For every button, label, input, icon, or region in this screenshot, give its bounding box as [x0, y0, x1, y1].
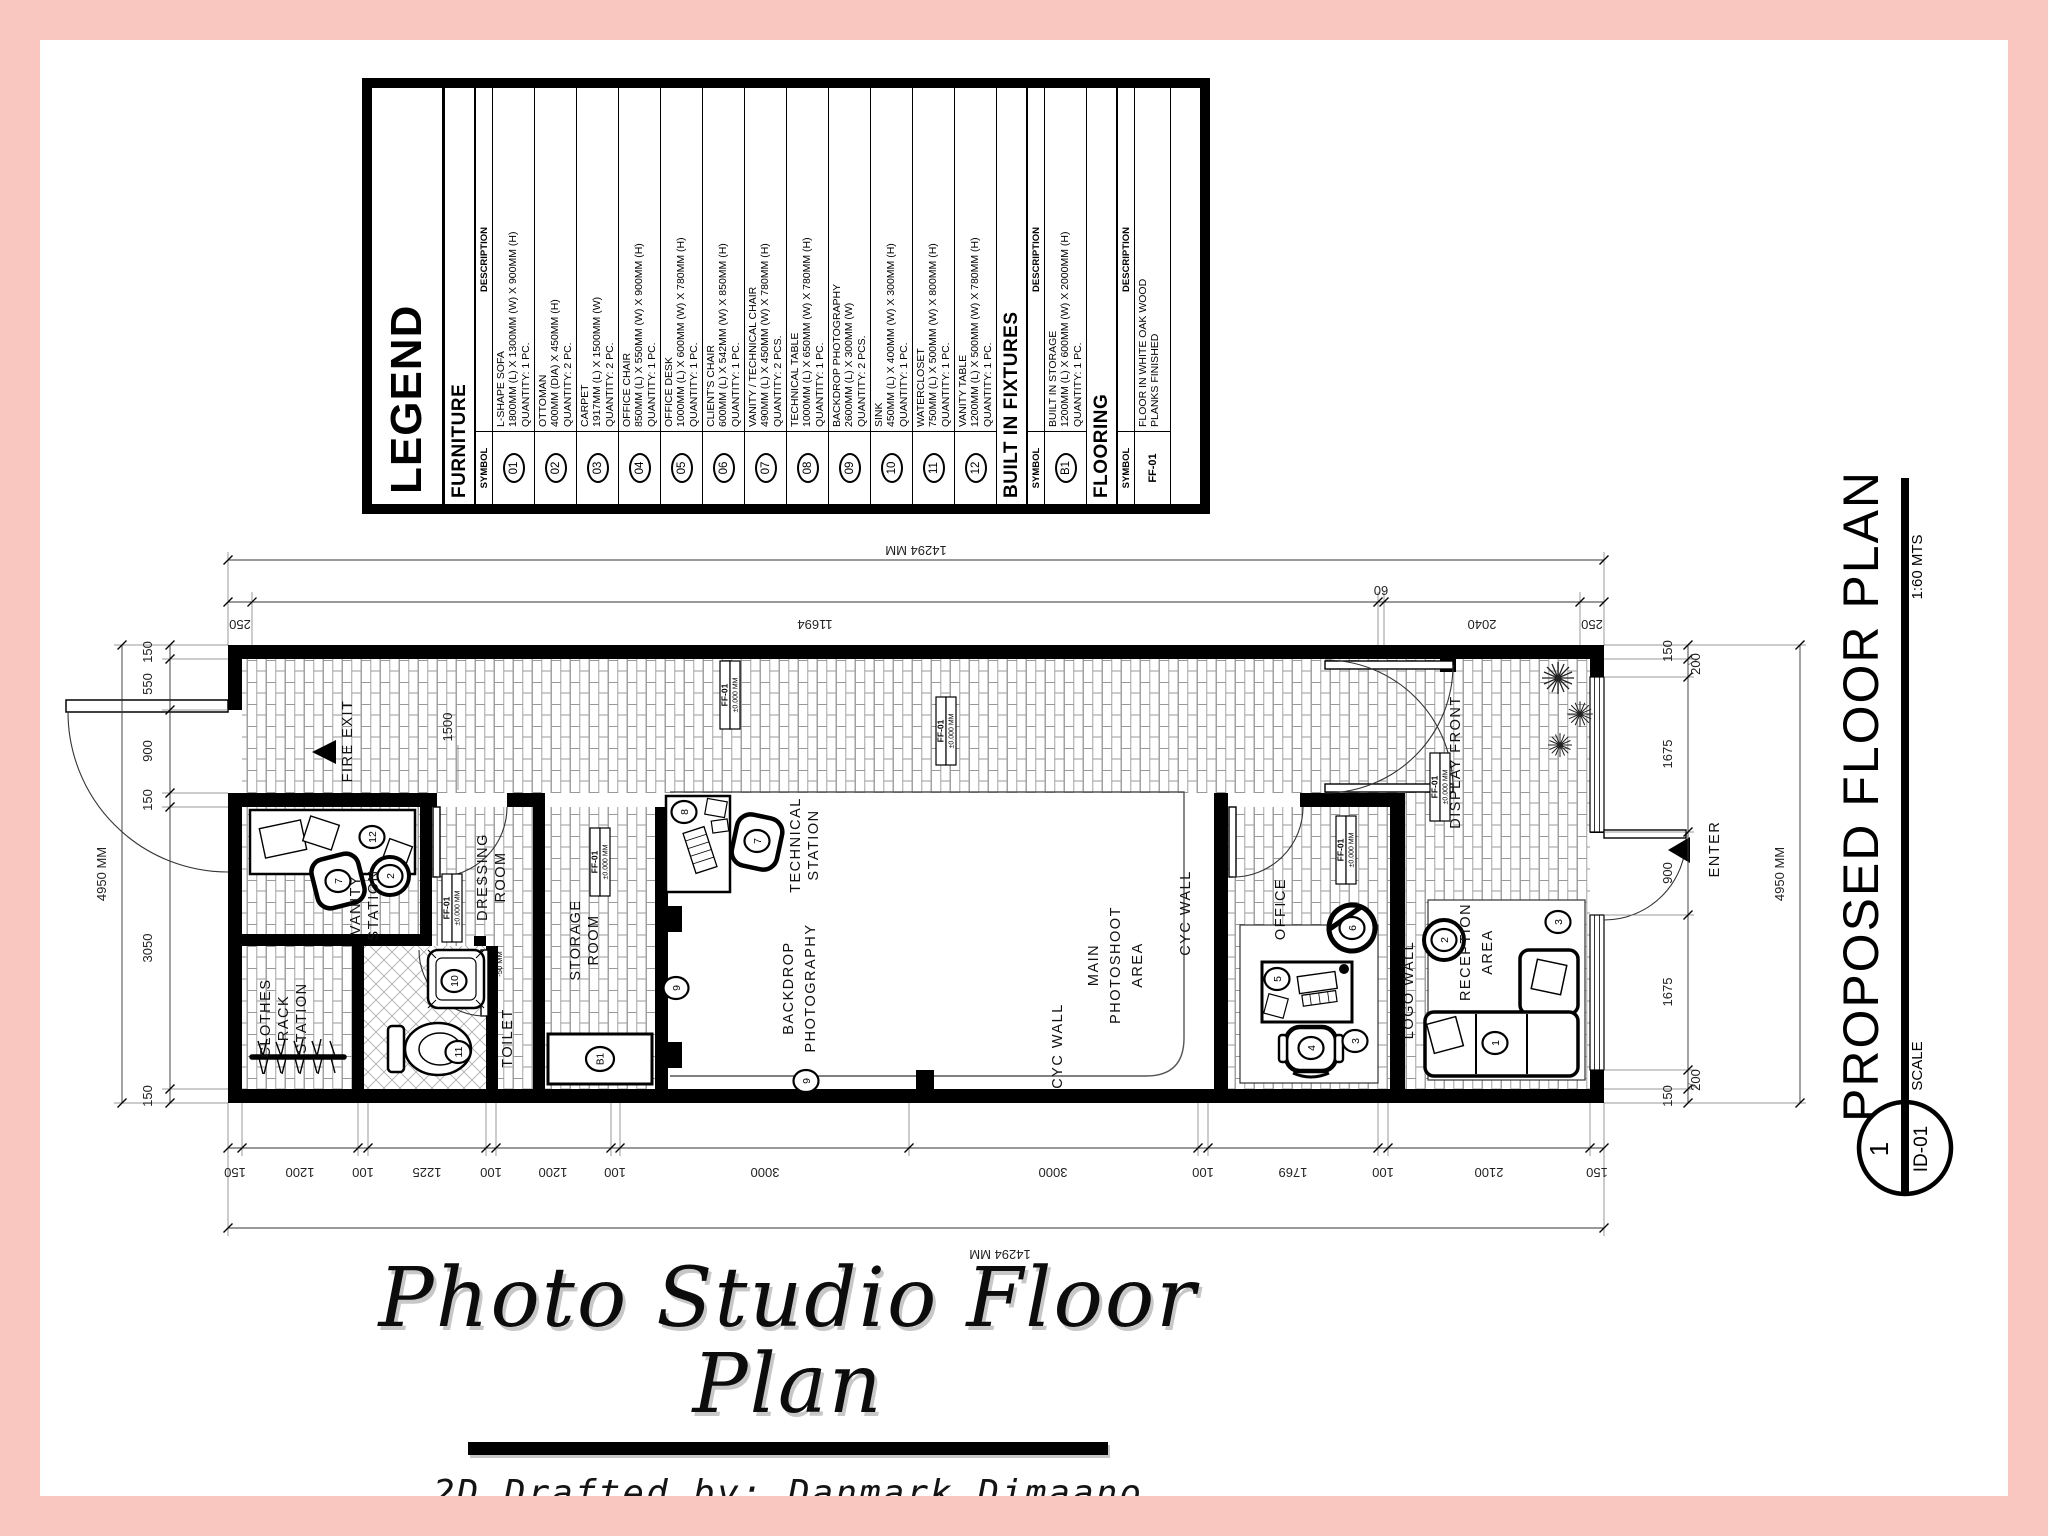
- description-header: DESCRIPTION: [1118, 88, 1134, 432]
- legend-row: B1BUILT IN STORAGE1200MM (L) X 600MM (W)…: [1045, 88, 1087, 504]
- svg-text:100: 100: [1372, 1165, 1394, 1180]
- legend-row: 02OTTOMAN400MM (DIA) X 450MM (H)QUANTITY…: [535, 88, 577, 504]
- svg-text:RACK: RACK: [276, 995, 292, 1041]
- svg-text:STATION: STATION: [366, 869, 382, 940]
- svg-text:100: 100: [1192, 1165, 1214, 1180]
- svg-text:BACKDROP: BACKDROP: [781, 941, 797, 1034]
- svg-text:60: 60: [1374, 583, 1388, 598]
- svg-text:100: 100: [352, 1165, 374, 1180]
- svg-text:AREA: AREA: [1480, 929, 1496, 975]
- legend-row: 09BACKDROP PHOTOGRAPHY2600MM (L) X 300MM…: [829, 88, 871, 504]
- svg-text:10: 10: [449, 975, 461, 987]
- svg-text:150: 150: [140, 641, 155, 663]
- svg-text:±0.000 MM: ±0.000 MM: [603, 844, 610, 879]
- backdrop-mount: [666, 1042, 682, 1068]
- scale-label: SCALE: [1909, 1041, 1926, 1090]
- legend-row: 11WATERCLOSET750MM (L) X 500MM (W) X 800…: [913, 88, 955, 504]
- display-front-label: DISPLAY FRONT: [1448, 695, 1464, 828]
- svg-text:9: 9: [671, 985, 683, 991]
- symbol-header: SYMBOL: [1118, 432, 1134, 504]
- svg-text:±0.000 MM: ±0.000 MM: [1349, 832, 1356, 867]
- symbol-reception-ottoman: 2: [1432, 929, 1457, 951]
- svg-text:±0.000 MM: ±0.000 MM: [455, 890, 462, 925]
- dim-left-overall: 4950 MM: [94, 847, 109, 901]
- svg-text:3: 3: [1350, 1038, 1362, 1044]
- svg-text:ENTER: ENTER: [1707, 821, 1723, 878]
- legend-row: 03CARPET1917MM (L) X 1500MM (W)QUANTITY:…: [577, 88, 619, 504]
- legend-row: 08TECHNICAL TABLE1000MM (L) X 650MM (W) …: [787, 88, 829, 504]
- legend-row: 05OFFICE DESK1000MM (L) X 600MM (W) X 78…: [661, 88, 703, 504]
- office-label: OFFICE: [1273, 878, 1289, 940]
- dim-top-overall: 14294 MM: [885, 543, 946, 558]
- legend-row: 07VANITY / TECHNICAL CHAIR490MM (L) X 45…: [745, 88, 787, 504]
- svg-text:7: 7: [752, 838, 764, 844]
- level-tag: FF-01±0.000 MM: [936, 697, 957, 765]
- legend-row: FF-01FLOOR IN WHITE OAK WOODPLANKS FINIS…: [1135, 88, 1171, 504]
- symbol-vanity-table: 12: [360, 826, 385, 848]
- legend-row: 06CLIENT'S CHAIR600MM (L) X 542MM (W) X …: [703, 88, 745, 504]
- svg-text:FIRE EXIT: FIRE EXIT: [340, 700, 356, 783]
- enter-label: ENTER: [1668, 821, 1723, 878]
- legend-row: 10SINK450MM (L) X 400MM (W) X 300MM (H)Q…: [871, 88, 913, 504]
- symbol-technical-chair: 7: [745, 830, 770, 852]
- svg-text:ROOM: ROOM: [493, 851, 509, 902]
- drawing-sheet: { "legend": { "title": "LEGEND", "sectio…: [0, 0, 2048, 1536]
- level-tag: FF-01±0.000 MM: [720, 661, 741, 729]
- svg-text:PHOTOSHOOT: PHOTOSHOOT: [1108, 906, 1124, 1024]
- svg-text:2100: 2100: [1475, 1165, 1504, 1180]
- detail-number: 1: [1864, 1142, 1894, 1156]
- title-underline: [468, 1442, 1108, 1455]
- svg-text:FF-01: FF-01: [1336, 838, 1346, 861]
- logo-wall-label: LOGO WALL: [1401, 941, 1417, 1039]
- svg-text:150: 150: [1660, 1085, 1675, 1107]
- sheet-id: ID-01: [1911, 1126, 1932, 1172]
- svg-text:9: 9: [801, 1078, 813, 1084]
- svg-text:FF-01: FF-01: [442, 896, 452, 919]
- description-header: DESCRIPTION: [476, 88, 492, 432]
- svg-text:MAIN: MAIN: [1086, 944, 1102, 986]
- svg-text:100: 100: [480, 1165, 502, 1180]
- toilet-level-tag: -50 MM: [495, 951, 504, 976]
- cyc-wall-label: CYC WALL: [1050, 1003, 1066, 1089]
- svg-text:11694: 11694: [797, 617, 832, 632]
- symbol-office-desk: 5: [1265, 968, 1290, 990]
- svg-text:VANITY: VANITY: [348, 875, 364, 935]
- legend-row: 12VANITY TABLE1200MM (L) X 500MM (W) X 7…: [955, 88, 997, 504]
- svg-text:STATION: STATION: [294, 982, 310, 1053]
- sheet-title: PROPOSED FLOOR PLAN: [1833, 470, 1889, 1122]
- svg-text:AREA: AREA: [1130, 942, 1146, 988]
- toilet-label: TOILET: [500, 1008, 516, 1068]
- scale-value: 1:60 MTS: [1909, 534, 1926, 599]
- legend: LEGEND FURNITURE SYMBOL DESCRIPTION 01L-…: [362, 78, 1210, 514]
- symbol-header: SYMBOL: [1028, 432, 1044, 504]
- svg-text:FF-01: FF-01: [720, 683, 730, 706]
- level-tag: FF-01±0.000 MM: [1336, 816, 1357, 884]
- svg-text:1675: 1675: [1660, 740, 1675, 769]
- svg-text:3050: 3050: [140, 934, 155, 963]
- svg-text:2: 2: [1439, 937, 1451, 943]
- svg-text:B1: B1: [596, 1052, 607, 1065]
- svg-text:ROOM: ROOM: [586, 914, 602, 965]
- svg-text:3: 3: [1553, 919, 1565, 925]
- svg-text:1: 1: [1490, 1040, 1502, 1046]
- svg-text:1200: 1200: [539, 1165, 568, 1180]
- svg-text:150: 150: [140, 1085, 155, 1107]
- title-block: PROPOSED FLOOR PLAN 1:60 MTS SCALE 1 ID-…: [1833, 470, 1951, 1194]
- svg-text:TECHNICAL: TECHNICAL: [788, 797, 804, 893]
- legend-row: 04OFFICE CHAIR850MM (L) X 550MM (W) X 90…: [619, 88, 661, 504]
- symbol-vanity-chair: 7: [326, 870, 351, 892]
- legend-section-flooring: FLOORING: [1087, 88, 1118, 504]
- svg-text:12: 12: [367, 831, 379, 843]
- svg-text:FF-01: FF-01: [590, 850, 600, 873]
- svg-text:2: 2: [385, 873, 397, 879]
- svg-text:200: 200: [1688, 653, 1703, 675]
- svg-text:4: 4: [1306, 1045, 1318, 1051]
- svg-text:1225: 1225: [413, 1165, 442, 1180]
- svg-text:3000: 3000: [751, 1165, 780, 1180]
- display-window: [1590, 915, 1604, 1070]
- level-tag: FF-01±0.000 MM: [1430, 753, 1451, 821]
- description-header: DESCRIPTION: [1028, 88, 1044, 432]
- svg-text:5: 5: [1272, 976, 1284, 982]
- display-window: [1590, 677, 1604, 832]
- svg-text:RECEPTION: RECEPTION: [1458, 903, 1474, 1001]
- legend-section-built-in: BUILT IN FIXTURES: [997, 88, 1028, 504]
- svg-text:900: 900: [140, 740, 155, 762]
- svg-text:FF-01: FF-01: [1430, 775, 1440, 798]
- dim-right-overall: 4950 MM: [1772, 847, 1787, 901]
- symbol-watercloset: 11: [446, 1041, 471, 1063]
- svg-text:900: 900: [1660, 862, 1675, 884]
- svg-text:6: 6: [1347, 925, 1359, 931]
- symbol-reception-carpet: 3: [1546, 911, 1571, 933]
- fire-exit-door: [66, 700, 228, 872]
- symbol-office-carpet: 3: [1343, 1030, 1368, 1052]
- dim-interior-corridor: 1500: [440, 713, 455, 742]
- svg-text:2040: 2040: [1468, 617, 1497, 632]
- svg-text:11: 11: [453, 1046, 465, 1057]
- symbol-sofa: 1: [1483, 1032, 1508, 1054]
- svg-text:CLOTHES: CLOTHES: [258, 979, 274, 1058]
- enter-arrow-icon: [1668, 837, 1690, 863]
- svg-text:150: 150: [1586, 1165, 1608, 1180]
- symbol-office-chair: 4: [1299, 1037, 1324, 1059]
- symbol-sink: 10: [442, 970, 467, 992]
- svg-text:STATION: STATION: [806, 809, 822, 880]
- legend-row: 01L-SHAPE SOFA1800MM (L) X 1300MM (W) X …: [493, 88, 535, 504]
- symbol-client-chair: 6: [1340, 917, 1365, 939]
- backdrop-mount: [666, 906, 682, 932]
- legend-title: LEGEND: [372, 88, 445, 504]
- svg-text:8: 8: [679, 809, 691, 815]
- backdrop-mount: [916, 1070, 934, 1089]
- svg-text:PHOTOGRAPHY: PHOTOGRAPHY: [803, 923, 819, 1052]
- svg-text:1200: 1200: [286, 1165, 315, 1180]
- svg-text:±0.000 MM: ±0.000 MM: [949, 713, 956, 748]
- svg-text:250: 250: [229, 617, 251, 632]
- svg-text:3000: 3000: [1039, 1165, 1068, 1180]
- cyc-wall-label: CYC WALL: [1178, 870, 1194, 956]
- svg-text:100: 100: [604, 1165, 626, 1180]
- svg-text:±0.000 MM: ±0.000 MM: [733, 677, 740, 712]
- svg-text:DRESSING: DRESSING: [475, 833, 491, 921]
- symbol-backdrop-left: 9: [664, 977, 689, 999]
- drafter-credit: 2D Drafted by: Danmark Dimaano: [318, 1473, 1258, 1514]
- symbol-header: SYMBOL: [476, 432, 492, 504]
- svg-text:FF-01: FF-01: [936, 719, 946, 742]
- symbol-technical-table: 8: [672, 801, 697, 823]
- legend-section-furniture: FURNITURE: [445, 88, 476, 504]
- symbol-backdrop-bottom: 9: [794, 1070, 819, 1092]
- level-tag: FF-01±0.000 MM: [442, 874, 463, 942]
- drawing-title: Photo Studio Floor Plan: [318, 1256, 1258, 1428]
- title-rule: [1901, 478, 1909, 1194]
- svg-text:7: 7: [333, 878, 345, 884]
- svg-text:1769: 1769: [1279, 1165, 1308, 1180]
- svg-text:STORAGE: STORAGE: [568, 899, 584, 980]
- svg-text:150: 150: [1660, 640, 1675, 662]
- svg-text:150: 150: [140, 789, 155, 811]
- sheet-footer: Photo Studio Floor Plan 2D Drafted by: D…: [318, 1256, 1258, 1514]
- level-tag: FF-01±0.000 MM: [590, 828, 611, 896]
- svg-text:550: 550: [140, 673, 155, 695]
- svg-text:200: 200: [1688, 1069, 1703, 1091]
- svg-text:1675: 1675: [1660, 978, 1675, 1007]
- svg-text:150: 150: [224, 1165, 246, 1180]
- svg-text:250: 250: [1581, 617, 1603, 632]
- symbol-built-in-storage: B1: [586, 1047, 614, 1071]
